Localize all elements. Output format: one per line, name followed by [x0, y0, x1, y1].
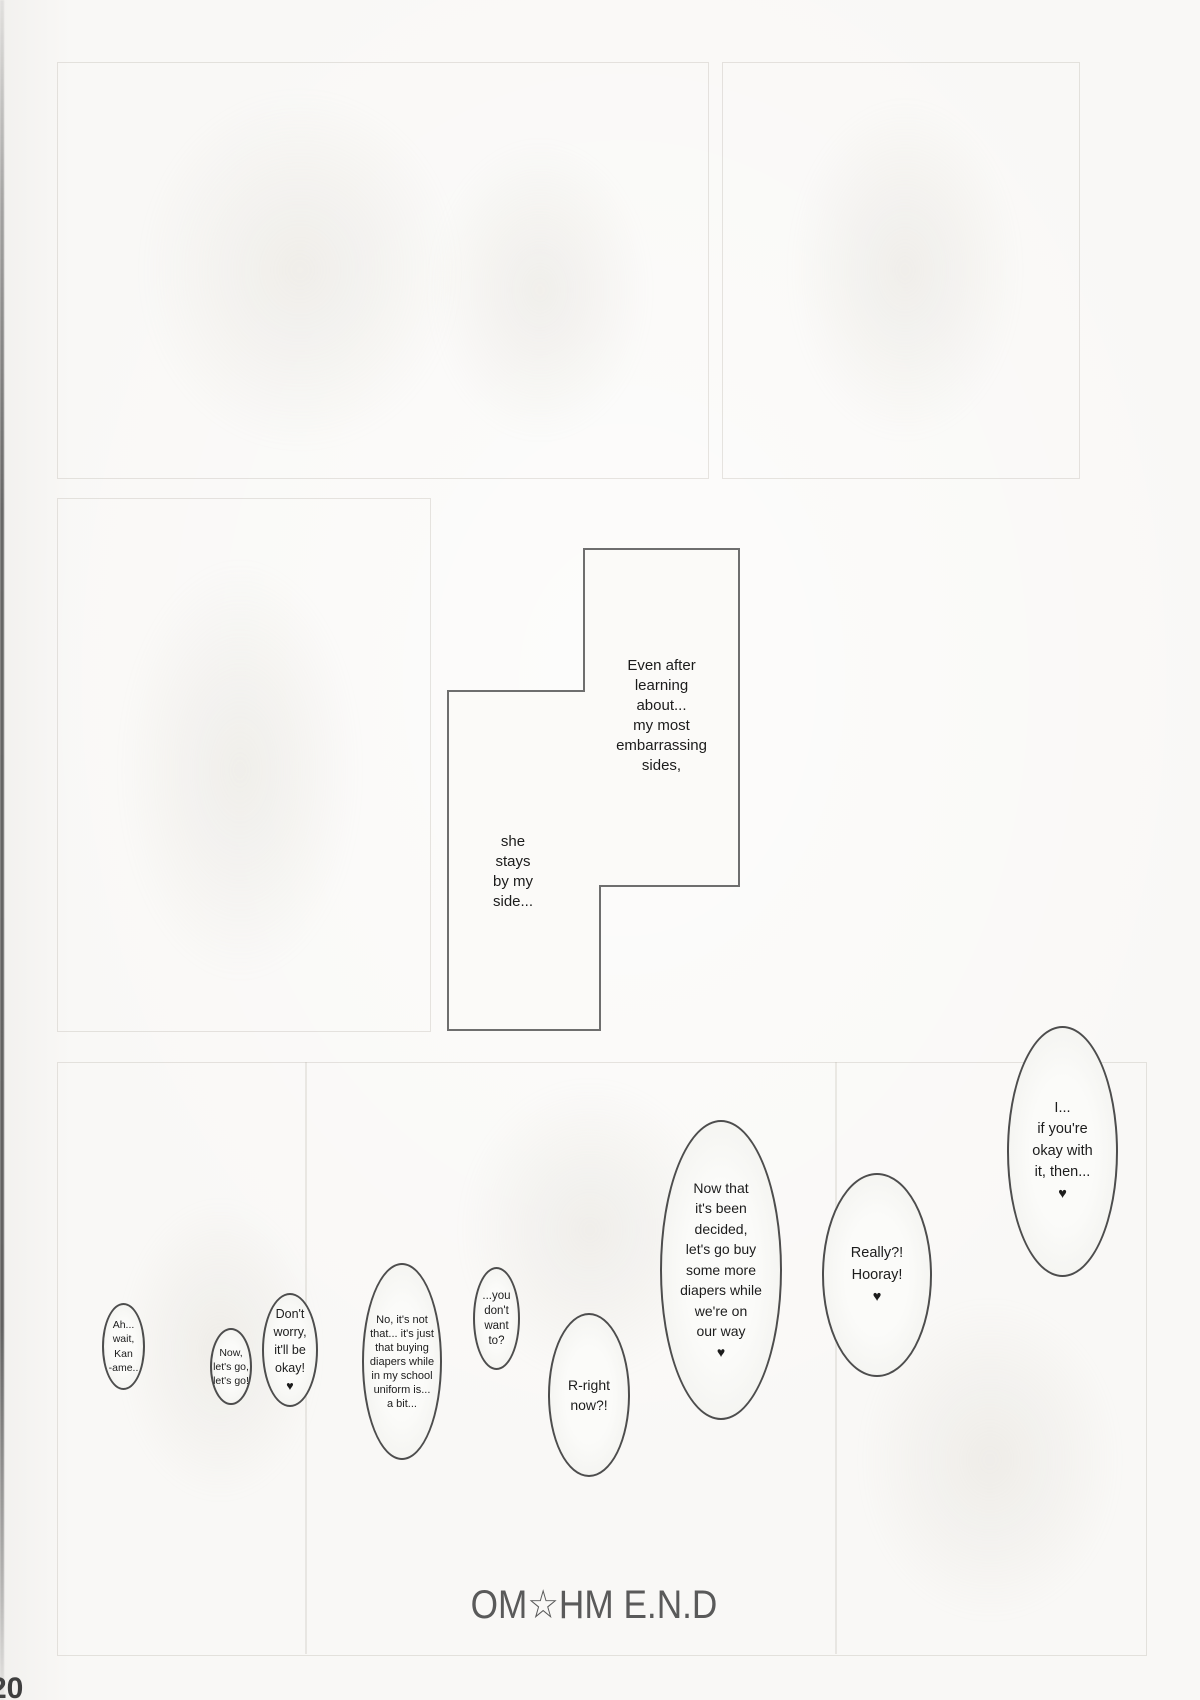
ghost-panel — [722, 62, 1080, 479]
scan-edge-strip — [0, 0, 4, 1700]
caption-text-upper: Even after learning about... my most emb… — [584, 656, 739, 776]
ghost-panel — [57, 498, 431, 1032]
page-number: 20 — [0, 1672, 23, 1700]
speech-bubble-lets-go: Now, let's go, let's go! — [210, 1328, 252, 1405]
bubble-text: I... if you're okay with it, then... ♥ — [1032, 1098, 1092, 1206]
speech-bubble-now-that: Now that it's been decided, let's go buy… — [660, 1120, 782, 1420]
speech-bubble-really-hooray: Really?! Hooray! ♥ — [822, 1173, 932, 1377]
speech-bubble-dont-worry: Don't worry, it'll be okay! ♥ — [262, 1293, 318, 1407]
ghost-art-blob — [140, 90, 460, 450]
bubble-text: ...you don't want to? — [482, 1289, 510, 1349]
ghost-panel-divider — [835, 1062, 837, 1654]
ghost-panel — [57, 62, 709, 479]
ghost-art-blob — [430, 140, 650, 440]
end-mark: OM☆HM E.N.D — [462, 1582, 726, 1628]
bubble-text: Don't worry, it'll be okay! ♥ — [273, 1305, 306, 1395]
bubble-text: No, it's not that... it's just that buyi… — [370, 1313, 434, 1411]
speech-bubble-no-its-not: No, it's not that... it's just that buyi… — [362, 1263, 442, 1460]
bubble-text: R-right now?! — [568, 1375, 610, 1415]
speech-bubble-if-youre-okay: I... if you're okay with it, then... ♥ — [1007, 1026, 1118, 1277]
bubble-text: Ah... wait, Kan -ame.. — [109, 1318, 139, 1376]
caption-box-shape — [448, 549, 739, 1030]
bubble-text: Now that it's been decided, let's go buy… — [680, 1178, 762, 1363]
caption-text-lower: she stays by my side... — [440, 832, 586, 912]
speech-bubble-ah-wait: Ah... wait, Kan -ame.. — [102, 1303, 145, 1390]
speech-bubble-you-dont-want: ...you don't want to? — [473, 1267, 520, 1370]
bubble-text: Now, let's go, let's go! — [213, 1346, 249, 1388]
speech-bubble-r-right-now: R-right now?! — [548, 1313, 630, 1477]
bubble-text: Really?! Hooray! ♥ — [851, 1242, 903, 1308]
ghost-art-blob — [120, 560, 360, 980]
manga-page: Even after learning about... my most emb… — [0, 0, 1200, 1700]
ghost-art-blob — [790, 100, 1020, 440]
